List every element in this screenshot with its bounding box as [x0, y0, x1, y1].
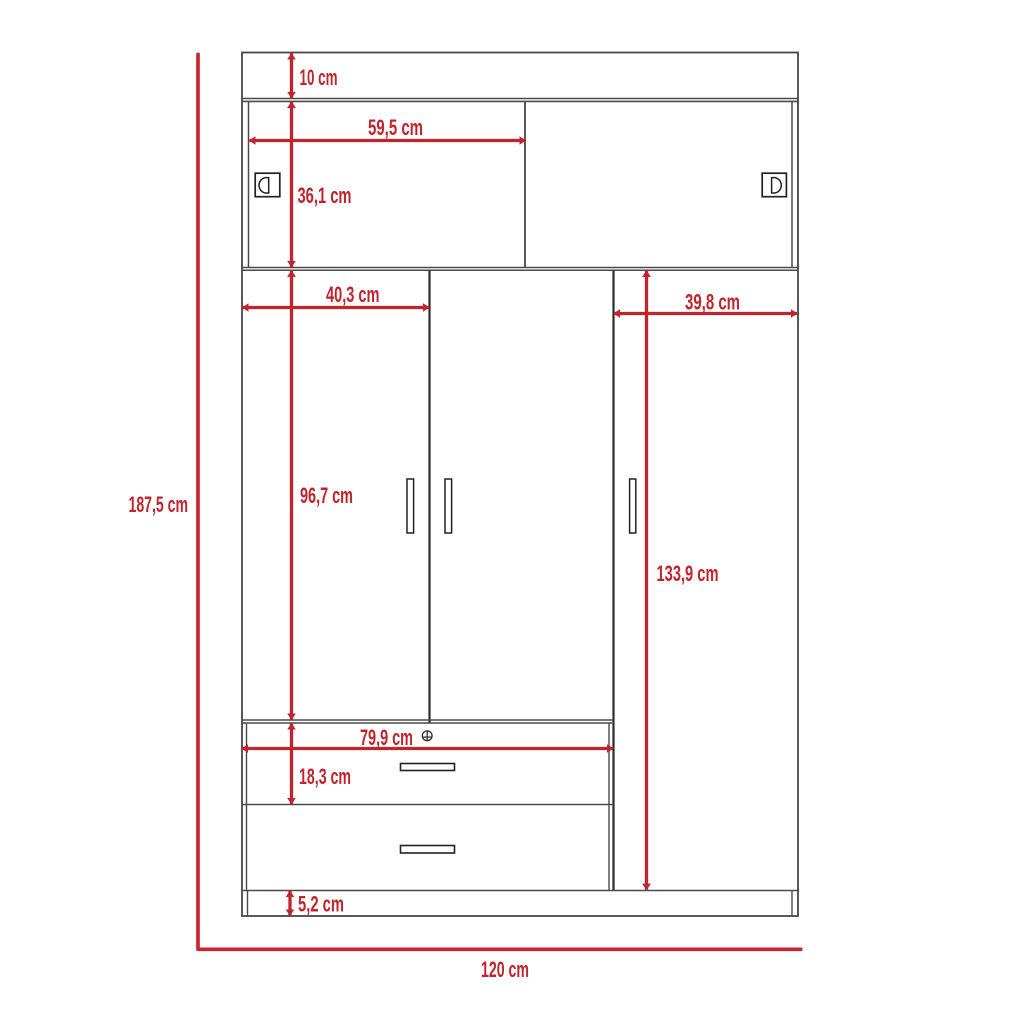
svg-text:59,5 cm: 59,5 cm: [368, 115, 423, 140]
svg-text:18,3 cm: 18,3 cm: [299, 764, 351, 789]
svg-text:133,9 cm: 133,9 cm: [657, 561, 719, 586]
svg-text:96,7 cm: 96,7 cm: [300, 483, 353, 508]
svg-text:10 cm: 10 cm: [300, 65, 338, 90]
svg-text:5,2 cm: 5,2 cm: [298, 892, 344, 917]
svg-text:79,9 cm: 79,9 cm: [360, 725, 413, 750]
svg-text:40,3 cm: 40,3 cm: [326, 282, 380, 307]
svg-text:36,1 cm: 36,1 cm: [298, 183, 352, 208]
svg-text:120 cm: 120 cm: [481, 957, 529, 982]
svg-text:39,8 cm: 39,8 cm: [685, 290, 740, 315]
svg-text:187,5 cm: 187,5 cm: [129, 492, 189, 517]
